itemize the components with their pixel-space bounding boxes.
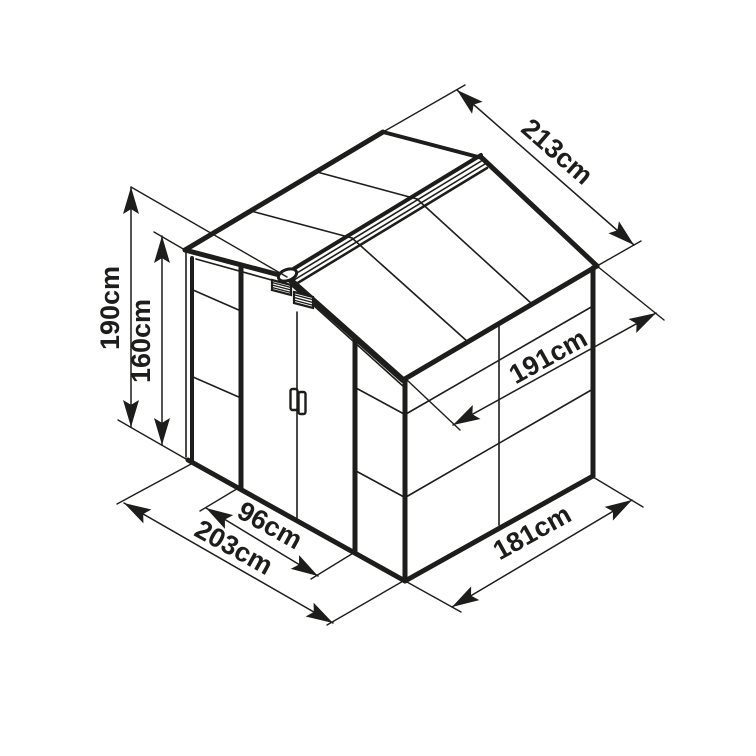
diagram-background bbox=[0, 0, 756, 756]
diagram-svg: 190cm160cm213cm191cm96cm203cm181cm bbox=[0, 0, 756, 756]
dimension-label-160cm: 160cm bbox=[126, 299, 156, 383]
dimension-label-190cm: 190cm bbox=[95, 266, 125, 350]
door-handle bbox=[291, 389, 298, 410]
door-handle bbox=[299, 392, 306, 414]
shed-dimension-diagram: 190cm160cm213cm191cm96cm203cm181cm bbox=[0, 0, 756, 756]
